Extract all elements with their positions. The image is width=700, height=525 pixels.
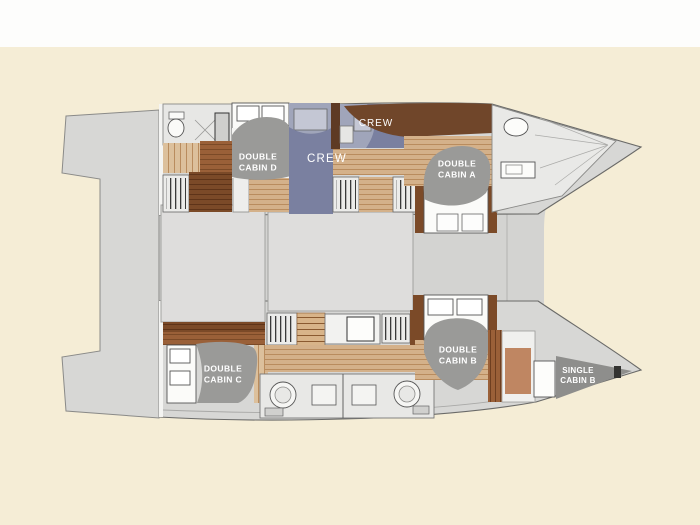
sink-icon: [347, 317, 374, 341]
rug: [505, 348, 531, 394]
duvet: [196, 342, 257, 403]
double-cabin-c: [167, 342, 257, 403]
crew-duvet: [289, 127, 333, 214]
vanity: [352, 385, 376, 405]
hull-bathrooms: [260, 374, 434, 418]
vanity: [312, 385, 336, 405]
duvet: [232, 117, 291, 180]
double-cabin-b: [413, 295, 497, 390]
double-cabin-d: [232, 103, 291, 180]
floor-plan-canvas: DOUBLE CABIN D CREW CREW DOUBLE CABIN A …: [0, 0, 700, 525]
bed: [534, 361, 555, 397]
louver-cabinet: [166, 178, 186, 209]
toilet-icon: [504, 118, 528, 136]
saloon-block: [161, 205, 413, 322]
cabin-d-bathroom: [163, 104, 232, 145]
catamaran-floor-plan: [0, 0, 700, 525]
galley: [267, 310, 424, 346]
stern-gap-top: [159, 104, 163, 215]
toilet-icon: [168, 119, 184, 137]
stern-platform: [62, 110, 159, 418]
